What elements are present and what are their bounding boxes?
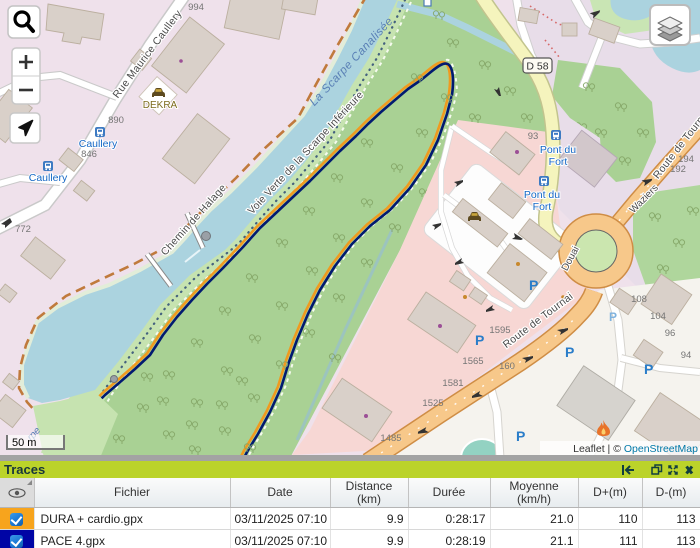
svg-text:P: P xyxy=(475,332,484,348)
svg-text:994: 994 xyxy=(188,2,204,13)
svg-text:Caullery: Caullery xyxy=(29,172,68,184)
svg-text:Fort: Fort xyxy=(533,201,552,213)
svg-text:108: 108 xyxy=(631,294,647,305)
svg-text:P: P xyxy=(609,310,617,324)
svg-text:93: 93 xyxy=(528,131,539,142)
svg-text:1565: 1565 xyxy=(462,356,483,367)
svg-text:1595: 1595 xyxy=(489,325,510,336)
svg-text:Leaflet | © OpenStreetMap: Leaflet | © OpenStreetMap xyxy=(573,443,698,455)
svg-text:94: 94 xyxy=(681,350,692,361)
svg-text:Pont du: Pont du xyxy=(540,144,576,156)
svg-text:P: P xyxy=(529,277,538,293)
svg-text:846: 846 xyxy=(81,149,97,160)
svg-text:50 m: 50 m xyxy=(12,437,36,449)
svg-text:Pont du: Pont du xyxy=(524,189,560,201)
svg-text:Caullery: Caullery xyxy=(79,138,118,150)
svg-text:P: P xyxy=(565,344,574,360)
svg-text:772: 772 xyxy=(15,224,31,235)
svg-text:1525: 1525 xyxy=(422,398,443,409)
svg-text:Fort: Fort xyxy=(549,156,568,168)
svg-text:1581: 1581 xyxy=(442,378,463,389)
svg-text:P: P xyxy=(644,361,653,377)
svg-text:890: 890 xyxy=(108,115,124,126)
svg-text:160: 160 xyxy=(499,361,515,372)
svg-text:96: 96 xyxy=(665,328,676,339)
svg-text:DEKRA: DEKRA xyxy=(143,100,178,111)
svg-text:1485: 1485 xyxy=(380,433,401,444)
svg-text:D 58: D 58 xyxy=(526,61,548,73)
svg-text:P: P xyxy=(516,428,525,444)
svg-text:104: 104 xyxy=(650,311,666,322)
svg-text:192: 192 xyxy=(670,164,686,175)
